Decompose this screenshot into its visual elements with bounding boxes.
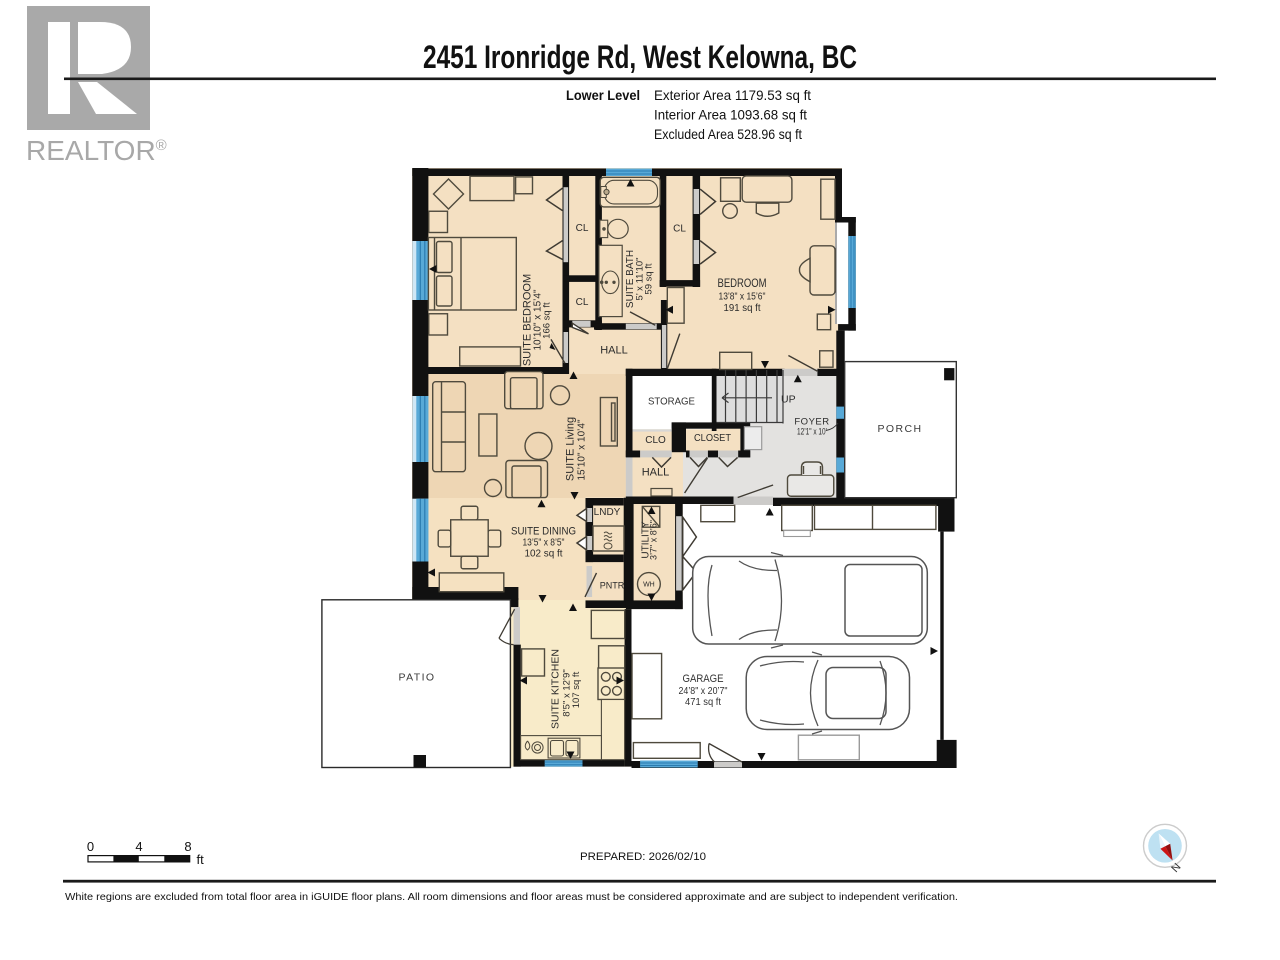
svg-text:REALTOR®: REALTOR® — [26, 135, 167, 166]
svg-text:CLOSET: CLOSET — [694, 432, 732, 444]
svg-text:13’8" x 15’6": 13’8" x 15’6" — [719, 292, 766, 303]
svg-text:Interior Area 1093.68 sq ft: Interior Area 1093.68 sq ft — [654, 107, 807, 123]
svg-text:2451 Ironridge Rd, West Kelown: 2451 Ironridge Rd, West Kelowna, BC — [423, 39, 857, 75]
svg-text:CL: CL — [576, 297, 589, 308]
svg-text:4: 4 — [135, 839, 142, 854]
svg-text:BEDROOM: BEDROOM — [718, 278, 767, 290]
svg-text:PREPARED: 2026/02/10: PREPARED: 2026/02/10 — [580, 851, 706, 863]
svg-text:PNTR: PNTR — [600, 581, 625, 591]
svg-text:HALL: HALL — [600, 345, 628, 357]
svg-text:191 sq ft: 191 sq ft — [724, 303, 761, 314]
svg-text:CL: CL — [673, 224, 686, 235]
svg-text:12’1" x 10’: 12’1" x 10’ — [797, 427, 827, 437]
svg-text:GARAGE: GARAGE — [683, 673, 724, 685]
svg-text:15’10" x 10’4": 15’10" x 10’4" — [576, 419, 587, 480]
svg-text:SUITE DINING: SUITE DINING — [511, 526, 576, 538]
svg-text:CL: CL — [576, 223, 589, 234]
svg-text:8: 8 — [184, 839, 191, 854]
svg-text:102 sq ft: 102 sq ft — [525, 549, 563, 560]
svg-text:UP: UP — [781, 393, 796, 405]
svg-text:ft: ft — [197, 852, 205, 867]
svg-text:HALL: HALL — [642, 467, 670, 479]
svg-text:13’5" x 8’5": 13’5" x 8’5" — [523, 538, 565, 549]
svg-text:Lower Level: Lower Level — [566, 87, 640, 103]
svg-text:3’7" x 8’6": 3’7" x 8’6" — [649, 520, 659, 560]
svg-text:471 sq ft: 471 sq ft — [685, 697, 721, 708]
svg-text:White regions are excluded fro: White regions are excluded from total fl… — [65, 891, 958, 903]
svg-text:166 sq ft: 166 sq ft — [542, 302, 553, 339]
svg-text:PATIO: PATIO — [399, 672, 436, 684]
svg-text:Excluded Area 528.96 sq ft: Excluded Area 528.96 sq ft — [654, 126, 802, 142]
svg-text:STORAGE: STORAGE — [648, 396, 695, 408]
svg-text:107 sq ft: 107 sq ft — [571, 671, 582, 708]
svg-text:WH: WH — [643, 582, 655, 589]
svg-text:SUITE Living: SUITE Living — [565, 417, 577, 481]
svg-text:LNDY: LNDY — [594, 507, 621, 518]
svg-text:Exterior Area 1179.53 sq ft: Exterior Area 1179.53 sq ft — [654, 87, 811, 103]
svg-text:59 sq ft: 59 sq ft — [644, 263, 655, 295]
svg-text:PORCH: PORCH — [878, 423, 923, 435]
svg-text:0: 0 — [87, 839, 94, 854]
svg-text:24’8" x 20’7": 24’8" x 20’7" — [679, 686, 728, 697]
svg-text:SUITE KITCHEN: SUITE KITCHEN — [550, 649, 562, 729]
svg-text:CLO: CLO — [645, 435, 666, 446]
